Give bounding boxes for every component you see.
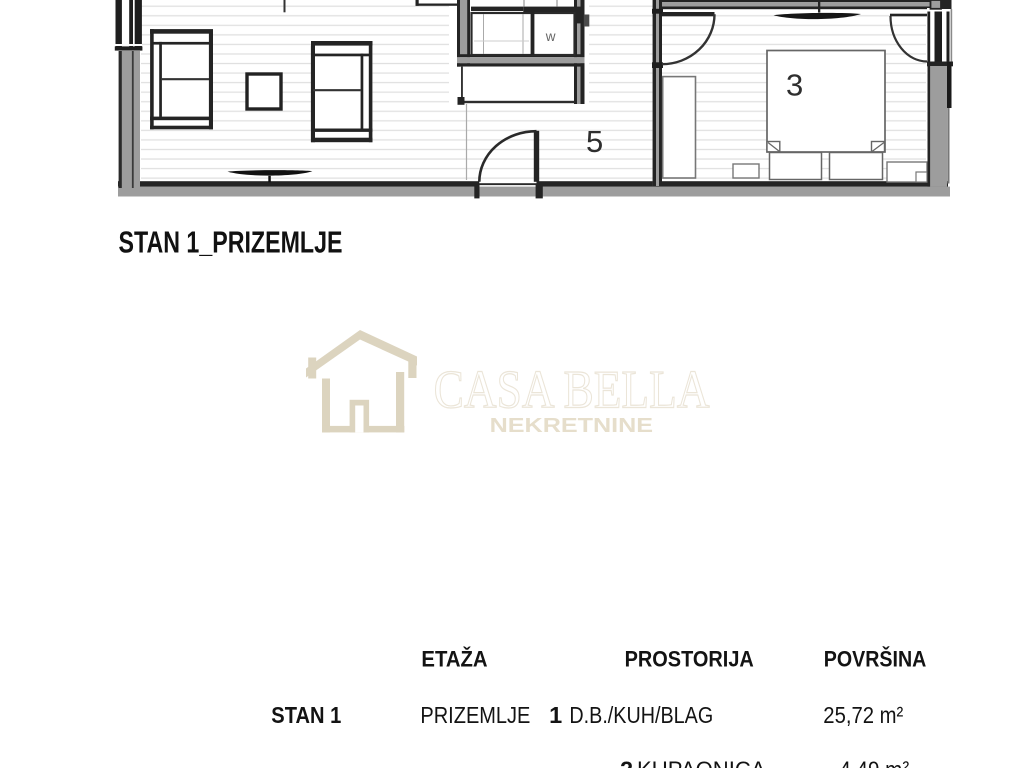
svg-text:ETAŽA: ETAŽA (421, 647, 487, 672)
svg-text:KUPAONICA: KUPAONICA (637, 757, 766, 768)
svg-text:5: 5 (586, 124, 603, 159)
svg-text:4,49 m²: 4,49 m² (839, 757, 909, 768)
svg-text:25,72 m²: 25,72 m² (823, 702, 903, 728)
svg-text:NEKRETNINE: NEKRETNINE (490, 415, 653, 437)
svg-text:2: 2 (620, 757, 633, 768)
svg-text:w: w (545, 29, 556, 44)
svg-text:POVRŠINA: POVRŠINA (824, 647, 927, 672)
svg-text:PROSTORIJA: PROSTORIJA (625, 647, 754, 672)
svg-text:CASA BELLA: CASA BELLA (434, 360, 710, 420)
svg-text:3: 3 (786, 68, 803, 103)
svg-text:PRIZEMLJE: PRIZEMLJE (420, 702, 530, 728)
svg-text:D.B./KUH/BLAG: D.B./KUH/BLAG (569, 702, 713, 728)
svg-text:1: 1 (549, 702, 562, 728)
svg-text:STAN 1: STAN 1 (271, 702, 341, 728)
svg-text:STAN 1_PRIZEMLJE: STAN 1_PRIZEMLJE (119, 225, 343, 260)
